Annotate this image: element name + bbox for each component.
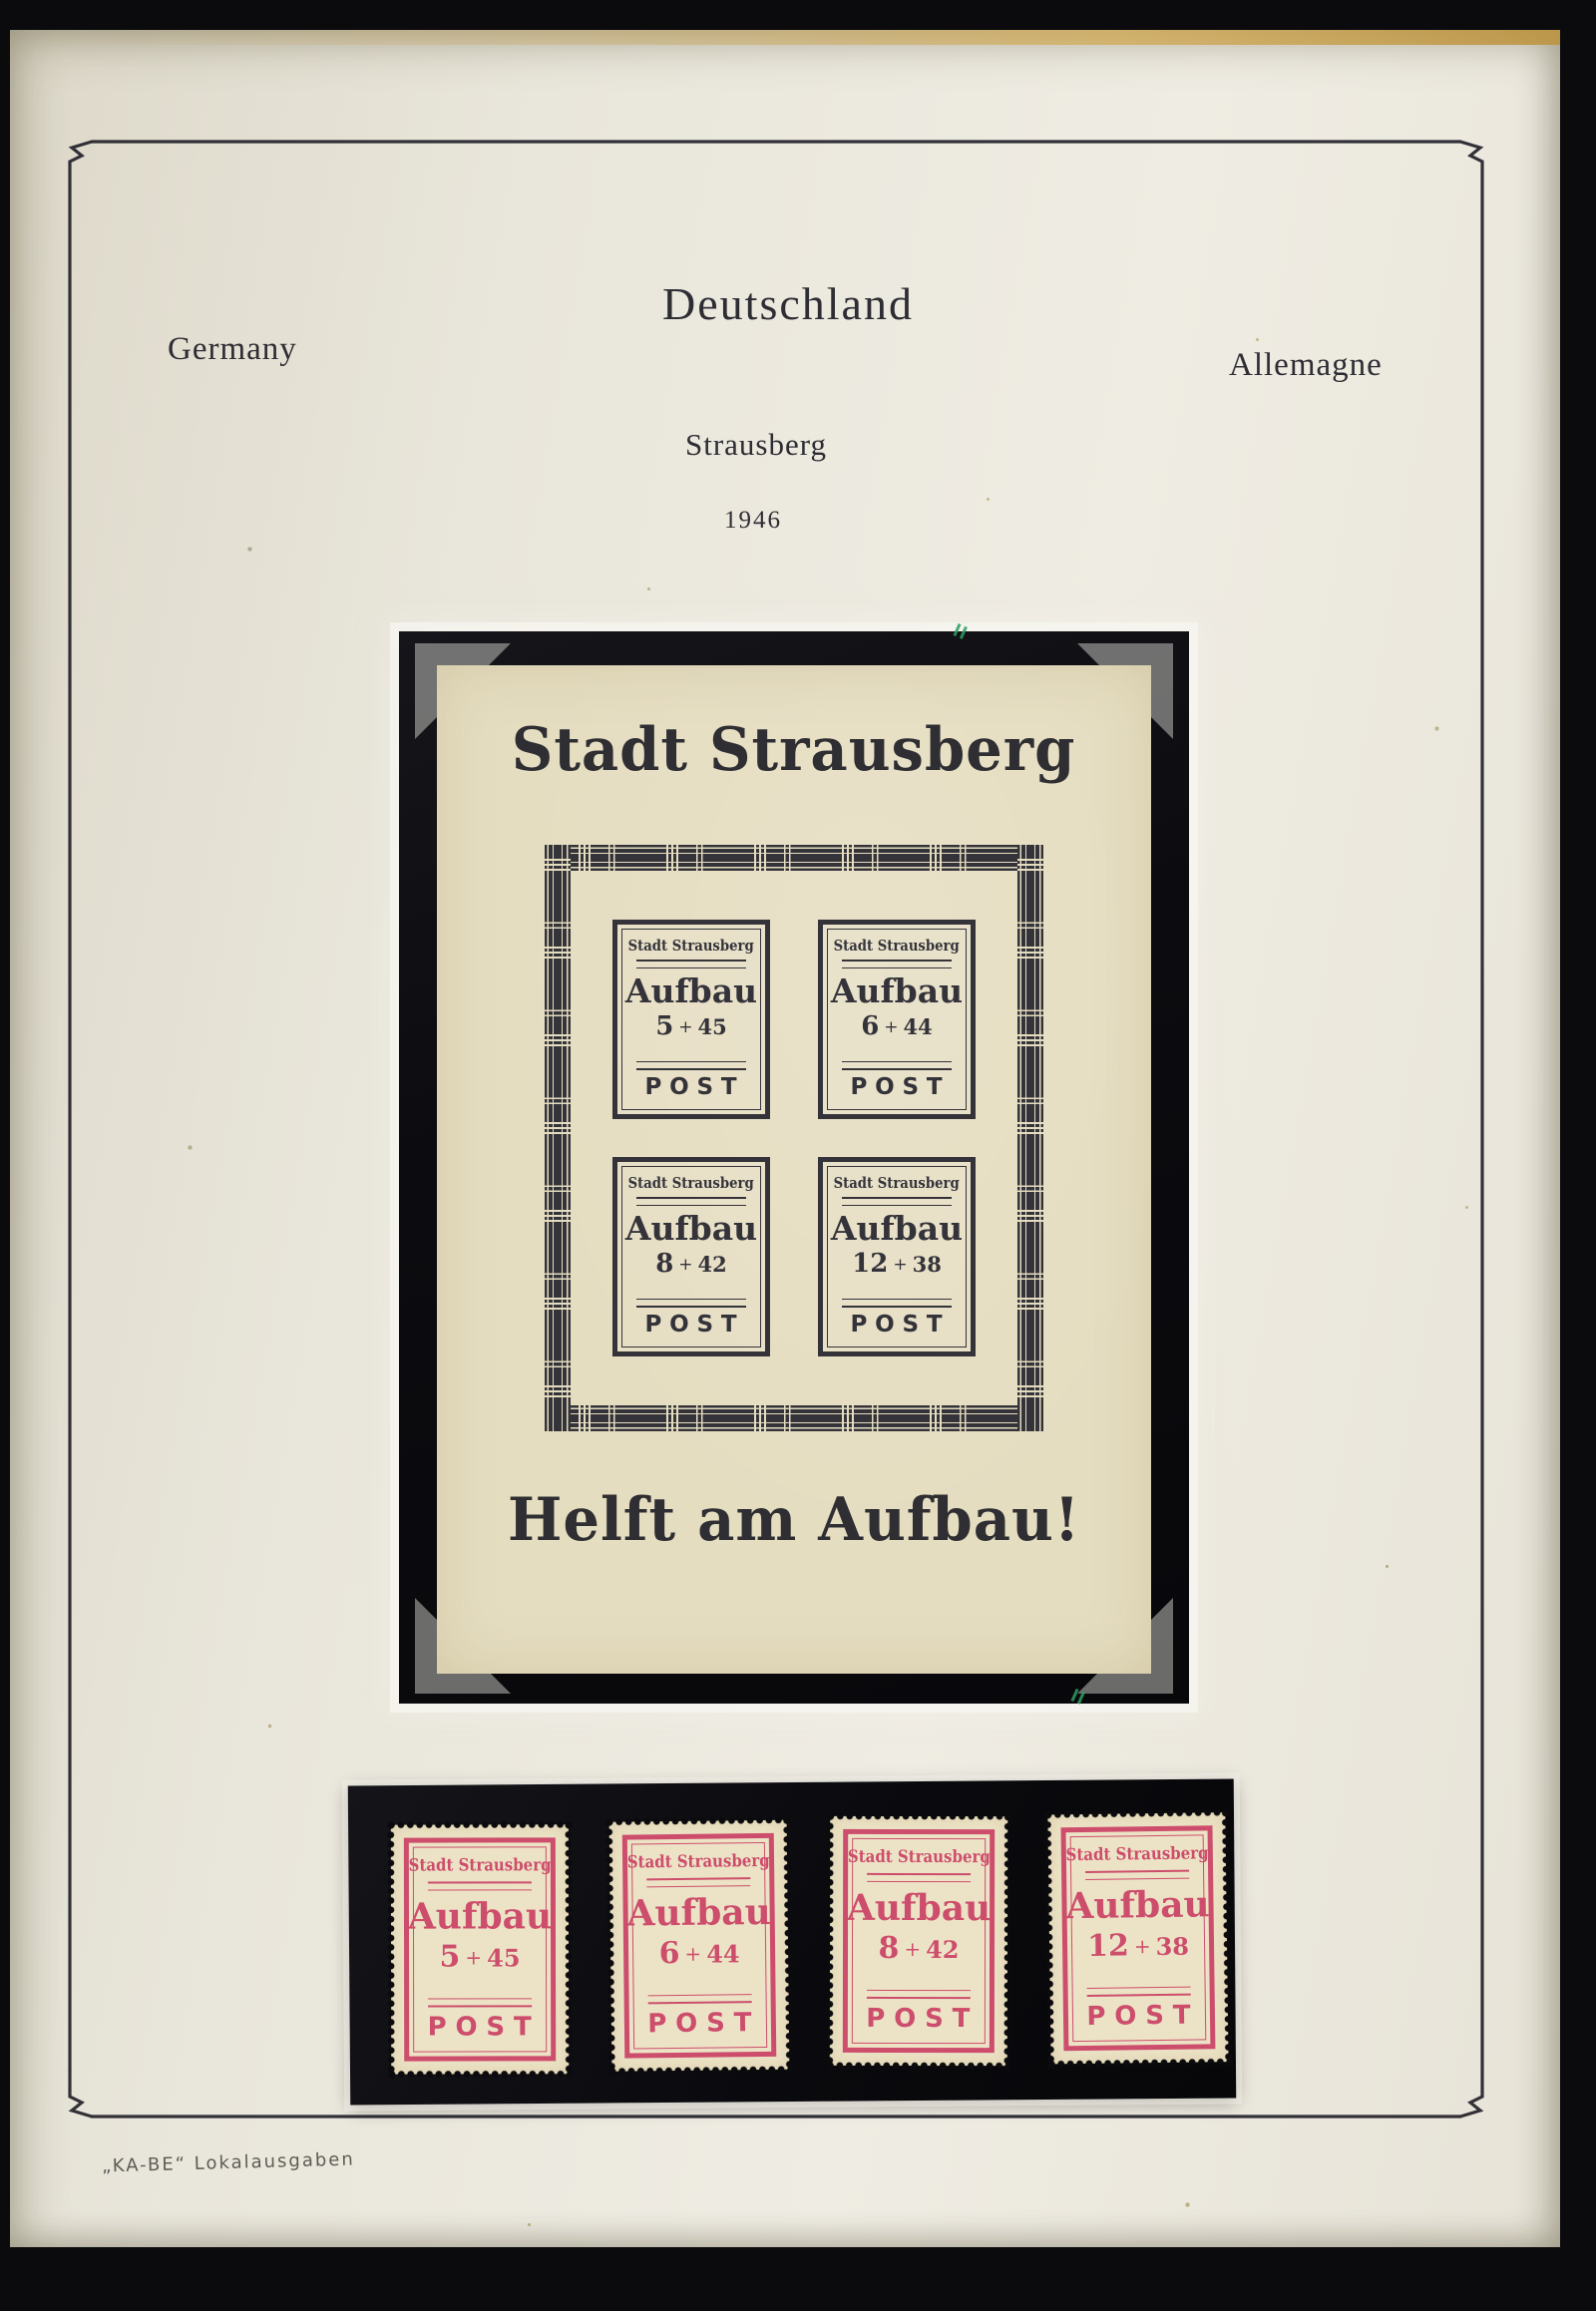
stamp-word-label: Aufbau (831, 974, 963, 1009)
stamp-word-label: Aufbau (408, 1898, 552, 1936)
plus-sign: + (678, 1255, 692, 1275)
stamp-face-value: 5 (655, 1011, 673, 1041)
album-page: Deutschland Germany Allemagne Strausberg… (10, 30, 1560, 2247)
plus-sign: + (678, 1017, 692, 1037)
stamp-post-label: POST (647, 2008, 760, 2039)
double-rule (636, 1299, 746, 1308)
stamp-5plus45: Stadt Strausberg Aufbau 5+45 POST (391, 1824, 569, 2074)
stamp-content: Stadt Strausberg Aufbau 12+38 POST (1072, 1836, 1205, 2040)
double-rule (428, 1998, 532, 2007)
block-stamp-12plus38: Stadt Strausberg Aufbau 12+38 POST (818, 1157, 976, 1356)
souvenir-sheet: Stadt Strausberg Stadt Strausberg (437, 665, 1151, 1674)
stamp-city-label: Stadt Strausberg (408, 1855, 551, 1875)
perforation-edge (1043, 1807, 1229, 1819)
perforation-edge (1220, 1808, 1233, 2066)
stamp-value: 6+44 (658, 1935, 739, 1971)
page-title-french: Allemagne (1229, 347, 1383, 384)
plus-sign: + (884, 1017, 898, 1037)
block-stamp-8plus42: Stadt Strausberg Aufbau 8+42 POST (612, 1157, 770, 1356)
double-rule (636, 1197, 746, 1206)
perforation-edge (604, 1818, 617, 2076)
perforation-edge (825, 1812, 835, 2070)
perforation-edge (826, 2061, 1011, 2071)
double-rule (842, 1299, 952, 1308)
sheet-title: Stadt Strausberg (512, 715, 1076, 785)
double-rule (867, 1873, 971, 1882)
page-title-english: Germany (168, 331, 297, 368)
tartan-frame-bottom (545, 1405, 1043, 1431)
stamp-content: Stadt Strausberg Aufbau 8+42 POST (854, 1840, 984, 2042)
perforation-edge (1002, 1812, 1012, 2070)
stamp-word-label: Aufbau (1065, 1886, 1210, 1926)
double-rule (648, 1994, 752, 2004)
perforation-edge (826, 1811, 1011, 1821)
stamp-6plus44: Stadt Strausberg Aufbau 6+44 POST (609, 1820, 790, 2072)
perforation-edge (386, 1821, 396, 2079)
sheet-slogan: Helft am Aufbau! (508, 1485, 1080, 1555)
stamp-surcharge: 45 (698, 1014, 727, 1039)
page-year: 1946 (724, 507, 782, 535)
stamp-value: 5+45 (439, 1939, 520, 1974)
perforation-edge (605, 1815, 791, 1827)
stamp-word-label: Aufbau (831, 1212, 963, 1247)
stamp-surcharge: 45 (487, 1943, 520, 1972)
stamp-post-label: POST (644, 1312, 744, 1338)
stamp-face-value: 12 (852, 1249, 888, 1279)
double-rule (428, 1881, 532, 1890)
double-rule (867, 1990, 971, 1999)
souvenir-sheet-mount: Stadt Strausberg Stadt Strausberg (399, 631, 1189, 1704)
stamp-city-label: Stadt Strausberg (628, 1174, 754, 1192)
stamp-surcharge: 42 (698, 1252, 727, 1277)
block-stamp-5plus45: Stadt Strausberg Aufbau 5+45 POST (612, 920, 770, 1119)
stamp-value: 12+38 (852, 1249, 942, 1279)
stamp-post-label: POST (644, 1074, 744, 1100)
perforation-edge (607, 2065, 793, 2077)
page-title: Deutschland (662, 277, 914, 330)
stamp-face-value: 12 (1087, 1928, 1129, 1964)
stamp-value: 12+38 (1087, 1927, 1189, 1963)
stamp-city-label: Stadt Strausberg (834, 1174, 960, 1192)
page-subtitle: Strausberg (685, 427, 827, 463)
block-stamp-6plus44: Stadt Strausberg Aufbau 6+44 POST (818, 920, 976, 1119)
perforation-edge (1047, 2057, 1233, 2069)
stamp-word-label: Aufbau (625, 1212, 757, 1247)
stamp-face-value: 8 (878, 1931, 899, 1966)
tartan-frame-left (545, 845, 571, 1431)
double-rule (646, 1877, 750, 1887)
plus-sign: + (904, 1937, 921, 1961)
stamp-city-label: Stadt Strausberg (834, 937, 960, 955)
stamp-face-value: 5 (439, 1939, 460, 1974)
stamp-value: 8+42 (655, 1249, 727, 1279)
stamp-word-label: Aufbau (626, 1894, 771, 1933)
stamp-city-label: Stadt Strausberg (1065, 1843, 1208, 1865)
sheet-stamp-grid: Stadt Strausberg Aufbau 5+45 POST (571, 871, 1017, 1405)
stamp-content: Stadt Strausberg Aufbau 5+45 POST (624, 932, 758, 1107)
double-rule (1087, 1987, 1191, 1997)
plus-sign: + (684, 1942, 701, 1966)
stamp-city-label: Stadt Strausberg (627, 1851, 770, 1873)
stamp-face-value: 6 (861, 1011, 879, 1041)
stamp-post-label: POST (428, 2012, 541, 2042)
stamp-strip-mount: Stadt Strausberg Aufbau 5+45 POST (348, 1779, 1236, 2106)
stamp-8plus42: Stadt Strausberg Aufbau 8+42 POST (830, 1816, 1007, 2066)
stamp-content: Stadt Strausberg Aufbau 6+44 POST (830, 932, 964, 1107)
double-rule (842, 960, 952, 968)
stamp-content: Stadt Strausberg Aufbau 12+38 POST (830, 1169, 964, 1345)
stamp-content: Stadt Strausberg Aufbau 6+44 POST (633, 1844, 765, 2047)
stamp-value: 5+45 (655, 1011, 727, 1041)
stamp-post-label: POST (866, 2004, 979, 2034)
plus-sign: + (1134, 1934, 1151, 1958)
perforation-edge (1042, 1810, 1055, 2068)
perforation-edge (782, 1816, 795, 2074)
perforation-edge (564, 1820, 574, 2078)
stamp-post-label: POST (850, 1074, 950, 1100)
scan-background: Deutschland Germany Allemagne Strausberg… (0, 0, 1596, 2311)
plus-sign: + (465, 1945, 482, 1969)
stamp-value: 6+44 (861, 1011, 933, 1041)
stamp-city-label: Stadt Strausberg (628, 937, 754, 955)
perforation-edge (387, 2069, 573, 2079)
perforation-edge (387, 1819, 573, 1829)
tartan-frame-right (1017, 845, 1043, 1431)
double-rule (636, 960, 746, 968)
stamp-face-value: 6 (658, 1936, 679, 1971)
stamp-surcharge: 44 (706, 1939, 740, 1968)
stamp-content: Stadt Strausberg Aufbau 8+42 POST (624, 1169, 758, 1345)
stamp-surcharge: 42 (926, 1935, 959, 1964)
double-rule (842, 1061, 952, 1070)
double-rule (1085, 1870, 1189, 1880)
tartan-frame-top (545, 845, 1043, 871)
stamp-word-label: Aufbau (847, 1890, 991, 1928)
stamp-12plus38: Stadt Strausberg Aufbau 12+38 POST (1047, 1812, 1228, 2064)
stamp-content: Stadt Strausberg Aufbau 5+45 POST (415, 1848, 545, 2050)
stamp-surcharge: 44 (904, 1014, 933, 1039)
stamp-surcharge: 38 (1155, 1931, 1189, 1960)
double-rule (636, 1061, 746, 1070)
plus-sign: + (893, 1255, 907, 1275)
tartan-frame: Stadt Strausberg Aufbau 5+45 POST (545, 845, 1043, 1431)
double-rule (842, 1197, 952, 1206)
stamp-post-label: POST (1086, 2000, 1199, 2031)
stamp-word-label: Aufbau (625, 974, 757, 1009)
pencil-mark (1070, 1689, 1078, 1702)
stamp-value: 8+42 (878, 1931, 959, 1966)
stamp-surcharge: 38 (913, 1252, 942, 1277)
stamp-post-label: POST (850, 1312, 950, 1338)
stamp-face-value: 8 (655, 1249, 673, 1279)
stamp-city-label: Stadt Strausberg (848, 1847, 991, 1867)
